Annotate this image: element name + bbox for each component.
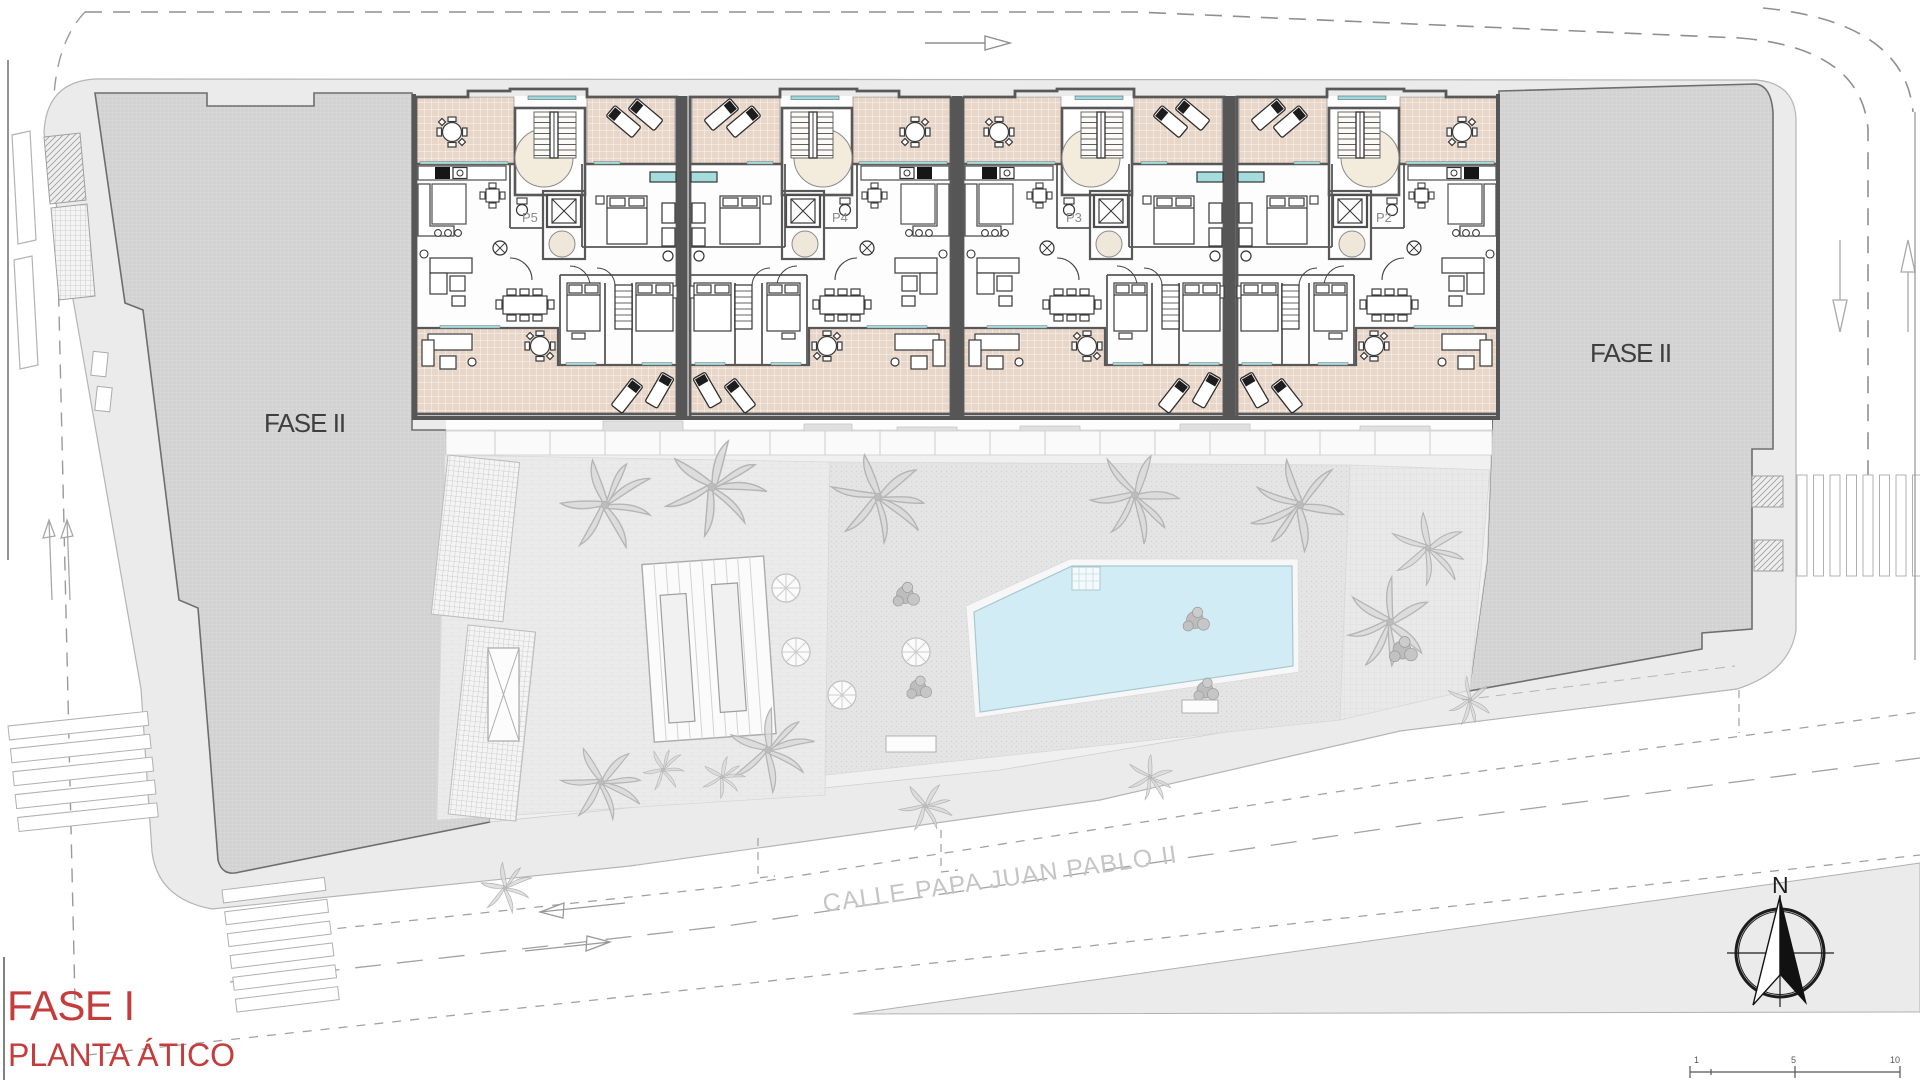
svg-text:P5: P5 bbox=[522, 210, 538, 225]
svg-text:PLANTA ÁTICO: PLANTA ÁTICO bbox=[8, 1037, 235, 1073]
svg-text:P3: P3 bbox=[1066, 210, 1082, 225]
svg-text:FASE I: FASE I bbox=[7, 982, 135, 1029]
svg-text:P4: P4 bbox=[832, 210, 848, 225]
svg-text:1: 1 bbox=[1694, 1055, 1699, 1065]
svg-text:FASE II: FASE II bbox=[264, 408, 345, 438]
svg-text:5: 5 bbox=[1791, 1055, 1796, 1065]
svg-text:FASE II: FASE II bbox=[1590, 338, 1671, 368]
svg-text:10: 10 bbox=[1890, 1055, 1900, 1065]
svg-text:P2: P2 bbox=[1376, 210, 1392, 225]
svg-text:N: N bbox=[1772, 872, 1789, 898]
